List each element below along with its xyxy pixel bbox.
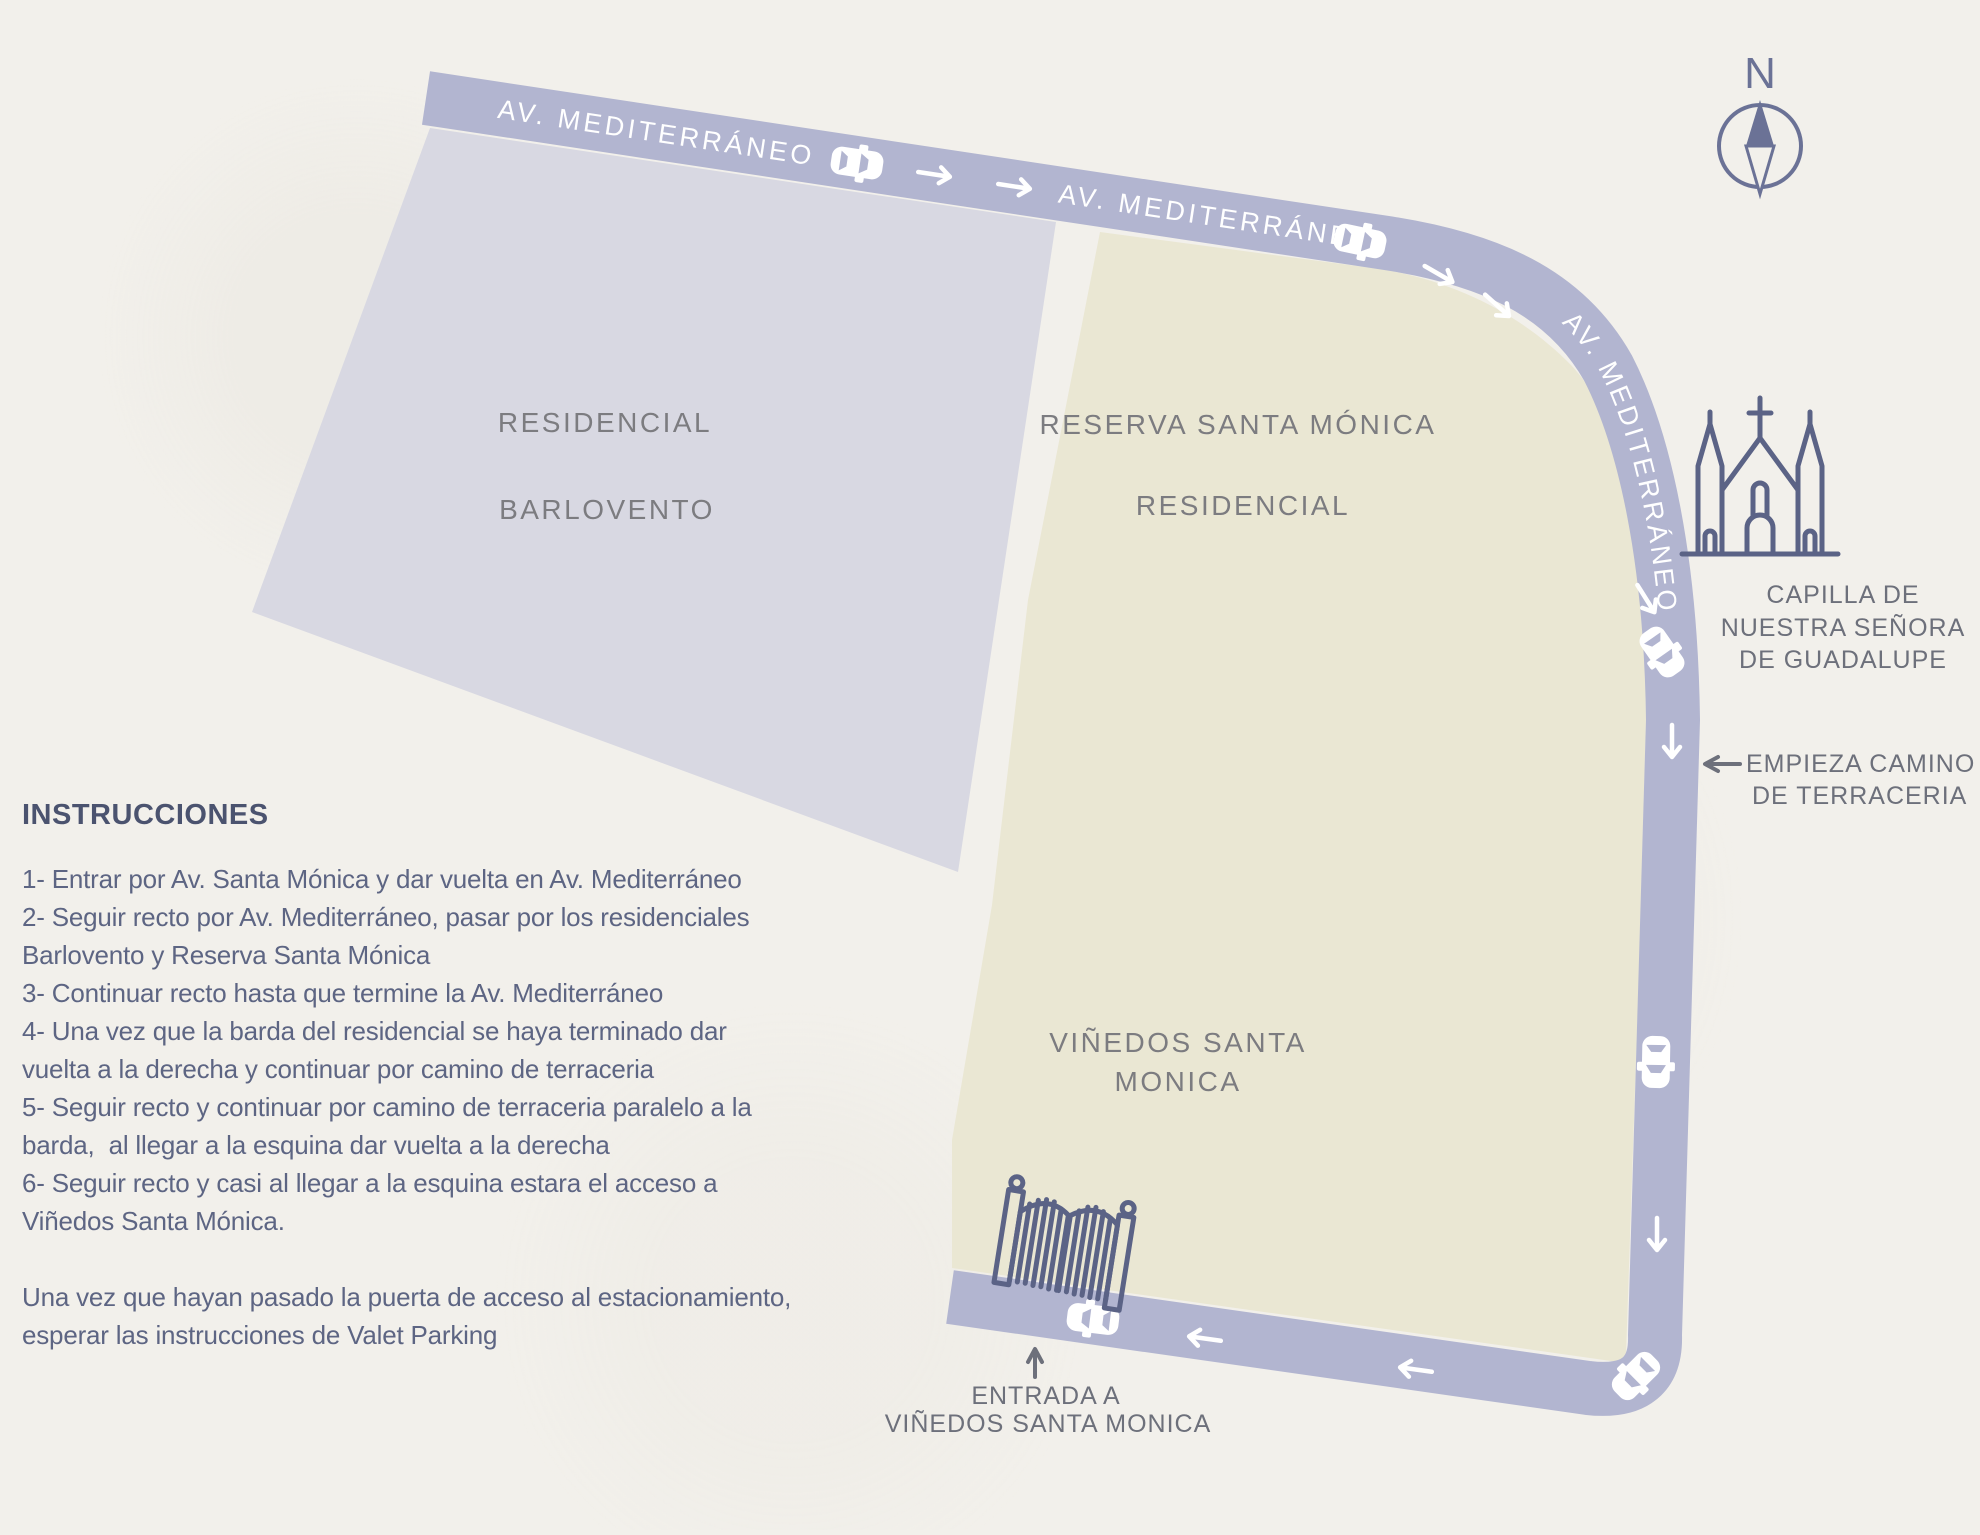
compass-n-label: N [1744,49,1776,98]
instruction-line: Barlovento y Reserva Santa Mónica [22,936,942,974]
instruction-line: 5- Seguir recto y continuar por camino d… [22,1088,942,1126]
instruction-line: Una vez que hayan pasado la puerta de ac… [22,1278,942,1316]
instruction-line: vuelta a la derecha y continuar por cami… [22,1050,942,1088]
church-caption-line2: NUESTRA SEÑORA [1721,613,1966,642]
area-label-vinedos-line2: MONICA [1115,1066,1242,1097]
terraceria-caption-line1: EMPIEZA CAMINO [1746,750,1975,778]
instruction-line: 4- Una vez que la barda del residencial … [22,1012,942,1050]
instruction-line: barda, al llegar a la esquina dar vuelta… [22,1126,942,1164]
instructions-title: INSTRUCCIONES [22,796,942,834]
church-caption-line3: DE GUADALUPE [1739,646,1947,674]
terraceria-arrow-icon [1705,757,1740,771]
compass-rose: N [1719,49,1801,194]
instruction-line: 3- Continuar recto hasta que termine la … [22,974,942,1012]
instruction-line [22,1240,942,1278]
area-label-reserva-line1: RESERVA SANTA MÓNICA [1040,409,1437,440]
area-label-barlovento-line2: BARLOVENTO [499,494,715,525]
entrance-caption-line1: ENTRADA A [971,1382,1120,1410]
instruction-line: esperar las instrucciones de Valet Parki… [22,1316,942,1354]
instruction-line: 6- Seguir recto y casi al llegar a la es… [22,1164,942,1202]
area-label-barlovento-line1: RESIDENCIAL [498,407,712,438]
entrance-caption-line2: VIÑEDOS SANTA MONICA [885,1409,1212,1438]
church-icon [1682,398,1838,554]
instructions-lines: 1- Entrar por Av. Santa Mónica y dar vue… [22,860,942,1354]
entrance-arrow-icon [1028,1349,1042,1377]
terraceria-caption-line2: DE TERRACERIA [1752,782,1967,810]
instruction-line: 2- Seguir recto por Av. Mediterráneo, pa… [22,898,942,936]
instruction-line: 1- Entrar por Av. Santa Mónica y dar vue… [22,860,942,898]
instruction-line: Viñedos Santa Mónica. [22,1202,942,1240]
area-label-vinedos-line1: VIÑEDOS SANTA [1049,1027,1307,1058]
area-label-reserva-line2: RESIDENCIAL [1136,490,1350,521]
area-reserva-vinedos [952,232,1646,1362]
church-caption-line1: CAPILLA DE [1766,581,1919,609]
instructions-panel: INSTRUCCIONES 1- Entrar por Av. Santa Mó… [22,796,942,1354]
